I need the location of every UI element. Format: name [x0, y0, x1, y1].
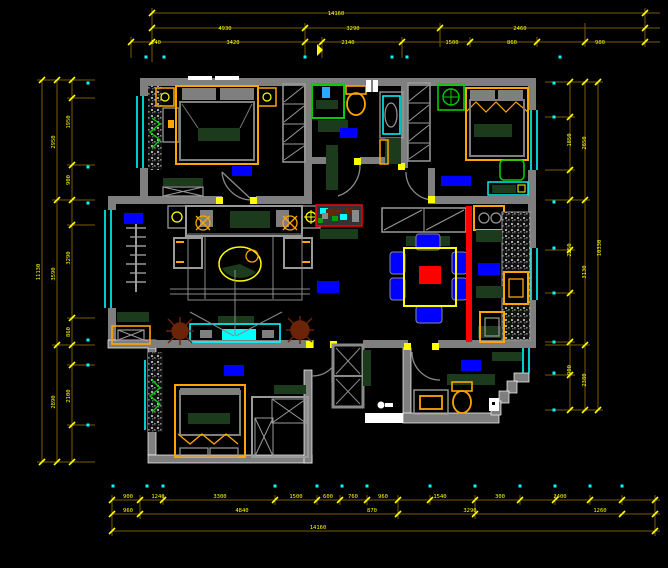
hinge-icon [404, 343, 411, 350]
tv-speaker [200, 330, 212, 338]
dim-label: 960 [378, 494, 388, 500]
window-gap-2 [108, 210, 116, 308]
dim-label: 900 [66, 175, 72, 185]
grid-dot [589, 485, 592, 488]
dim-label: 1260 [593, 508, 606, 514]
bench-cushion [163, 178, 203, 186]
shower-shelf [316, 100, 338, 109]
grid-dot [519, 485, 522, 488]
dim-label: 3290 [66, 251, 72, 264]
grid-dot [553, 341, 556, 344]
hinge-icon [250, 197, 257, 204]
dining-room [382, 208, 467, 323]
sliding-door-track [466, 206, 472, 342]
entry-hall [333, 345, 393, 409]
dim-label: 870 [367, 508, 377, 514]
dim-label: 1240 [151, 494, 164, 500]
grid-dot [553, 292, 556, 295]
chair-icon [416, 306, 442, 323]
dim-label: 1500 [445, 40, 458, 46]
dim-label: 14160 [328, 11, 345, 17]
dim-label: 2250 [567, 243, 573, 256]
room-label-block [461, 360, 481, 371]
grid-dot [474, 485, 477, 488]
dim-label: 600 [323, 494, 333, 500]
grid-dot [145, 56, 148, 59]
dim-label: 2890 [51, 395, 57, 408]
counter [447, 374, 495, 385]
grid-dot [87, 424, 90, 427]
bed-canopy-zigzag [466, 102, 528, 112]
counter [476, 286, 504, 298]
room-label-block [441, 176, 471, 186]
counter [492, 352, 522, 361]
chair-icon [390, 252, 405, 274]
dim-label: 2140 [341, 40, 354, 46]
bed-pillow [498, 90, 523, 100]
hall-rug [316, 205, 362, 239]
bed-blanket [474, 124, 512, 137]
desk-chair [500, 160, 524, 180]
bed-pillow [182, 88, 216, 100]
dim-label: 3300 [213, 494, 226, 500]
grid-dot [366, 485, 369, 488]
tv-speaker [262, 330, 274, 338]
door-arc-bath2 [412, 352, 440, 380]
dim-label: 960 [123, 508, 133, 514]
door-arc-bath1 [338, 164, 360, 196]
counter [476, 230, 502, 242]
dim-label: 1850 [567, 133, 573, 146]
shower-head-icon [322, 87, 330, 98]
grid-dot [87, 364, 90, 367]
floor-plan-drawing: 1416049303290246024034202140150086090011… [0, 0, 668, 568]
grid-dot [304, 56, 307, 59]
grid-dot [341, 485, 344, 488]
hinge-icon [432, 343, 439, 350]
chair-icon [390, 278, 405, 300]
grid-dot [559, 56, 562, 59]
bowl-icon [246, 250, 258, 262]
chair-icon [452, 252, 467, 274]
wall-living-top [108, 196, 148, 204]
wall-entry-top-stub [363, 340, 380, 348]
sofa-cushion [230, 211, 270, 228]
toilet-icon [347, 93, 365, 115]
bed-blanket [198, 128, 240, 141]
room-label-block [478, 263, 500, 275]
grid-dot [553, 116, 556, 119]
dim-label: 2380 [582, 373, 588, 386]
coffee-table-decor [222, 264, 256, 278]
dim-label: 3290 [463, 508, 476, 514]
nightstand-right [258, 88, 276, 106]
sink-basin [420, 396, 442, 409]
north-arrow-icon [378, 402, 385, 409]
wall-corridor-b [256, 196, 310, 204]
entry-threshold [365, 413, 403, 423]
wall-niche-1 [188, 76, 212, 80]
grid-dot [163, 56, 166, 59]
hinge-icon [428, 196, 435, 203]
grid-dot [406, 56, 409, 59]
dim-label: 300 [495, 494, 505, 500]
table-centerpiece [419, 266, 441, 284]
desk-top [492, 185, 516, 193]
hinge-icon [354, 158, 361, 165]
hinge-icon [216, 197, 223, 204]
grid-dot [391, 56, 394, 59]
dim-label: 4930 [218, 26, 231, 32]
dim-label: 14160 [310, 525, 327, 531]
north-arrow-tail [385, 403, 393, 407]
dim-label: 1500 [289, 494, 302, 500]
grid-dot [87, 166, 90, 169]
grid-dot [553, 82, 556, 85]
dim-label: 1950 [66, 115, 72, 128]
shaft-cabinet [363, 350, 371, 386]
dim-label: 760 [348, 494, 358, 500]
dim-label: 11130 [36, 264, 42, 281]
wall-step-1 [514, 373, 529, 382]
dim-label: 900 [123, 494, 133, 500]
dim-label: 900 [595, 40, 605, 46]
kitchen-sink [504, 272, 528, 304]
dim-label: 860 [507, 40, 517, 46]
chair-icon [452, 278, 467, 300]
grid-dot [87, 82, 90, 85]
grid-dot [553, 372, 556, 375]
grid-dot [553, 201, 556, 204]
dim-label: 900 [567, 365, 573, 375]
dim-label: 2850 [582, 136, 588, 149]
hall-cabinet [320, 229, 358, 239]
grid-dot [146, 485, 149, 488]
grid-dot [274, 485, 277, 488]
grid-dot [554, 485, 557, 488]
dim-label: 2460 [513, 26, 526, 32]
grid-dot [162, 485, 165, 488]
grid-dot [87, 339, 90, 342]
bathroom1 [312, 80, 403, 190]
room-label-block [340, 128, 357, 138]
lamp-icon [161, 93, 169, 101]
wardrobe [408, 83, 430, 161]
wardrobe [252, 397, 308, 457]
desk-lamp-icon [518, 185, 525, 192]
burner-icon [491, 213, 501, 223]
wall-dining-bottom-a [380, 340, 408, 348]
floor-lamp-icon [172, 212, 182, 222]
dim-label: 3130 [582, 265, 588, 278]
dim-label: 240 [151, 40, 161, 46]
window-gap-1 [140, 96, 148, 168]
grid-dot [87, 202, 90, 205]
low-cabinet [117, 312, 149, 322]
entry-threshold-block [365, 413, 403, 423]
hinge-icon [398, 163, 405, 170]
room-label-block [124, 213, 143, 224]
wall-bath2-left [403, 348, 411, 415]
dim-label: 3590 [51, 267, 57, 280]
wall-niche-2 [215, 76, 239, 80]
toilet-icon [453, 391, 471, 413]
grid-dot [553, 409, 556, 412]
dim-label: 2400 [553, 494, 566, 500]
grid-dot [553, 247, 556, 250]
bath-cabinet [326, 145, 338, 190]
bedroom1 [148, 84, 305, 196]
window-gap-4 [528, 110, 536, 170]
shelf [274, 385, 306, 394]
dimension-ticks [39, 10, 658, 534]
bed-blanket [188, 413, 230, 424]
dim-label: 2950 [51, 135, 57, 148]
grid-dot [621, 485, 624, 488]
dim-label: 10330 [597, 240, 603, 257]
dim-label: 1540 [433, 494, 446, 500]
wardrobe [283, 84, 305, 162]
wall-corridor-a [148, 196, 222, 204]
room-label-block [317, 281, 339, 293]
lamp-icon [263, 93, 271, 101]
sink-bowl [385, 103, 397, 127]
dim-label: 3420 [226, 40, 239, 46]
dim-label: 3290 [346, 26, 359, 32]
grid-dot [316, 485, 319, 488]
dresser-knob [168, 120, 174, 128]
bed-pillow [470, 90, 495, 100]
grid-dot [429, 485, 432, 488]
bed-pillow [220, 88, 254, 100]
grid-dot [112, 485, 115, 488]
cad-canvas[interactable]: 1416049303290246024034202140150086090011… [0, 0, 668, 568]
side-table-left [168, 206, 186, 228]
living-room [112, 206, 320, 345]
dim-label: 2100 [66, 389, 72, 402]
wall-bath1-right [401, 86, 408, 168]
axis-grid-dots [87, 56, 624, 488]
room-label-block [232, 166, 252, 176]
dim-label: 4840 [235, 508, 248, 514]
room-label-block [224, 365, 244, 376]
dim-label: 860 [66, 327, 72, 337]
wall-bed2-bottom [434, 196, 536, 204]
dimension-lines [37, 8, 660, 536]
burner-icon [479, 213, 489, 223]
